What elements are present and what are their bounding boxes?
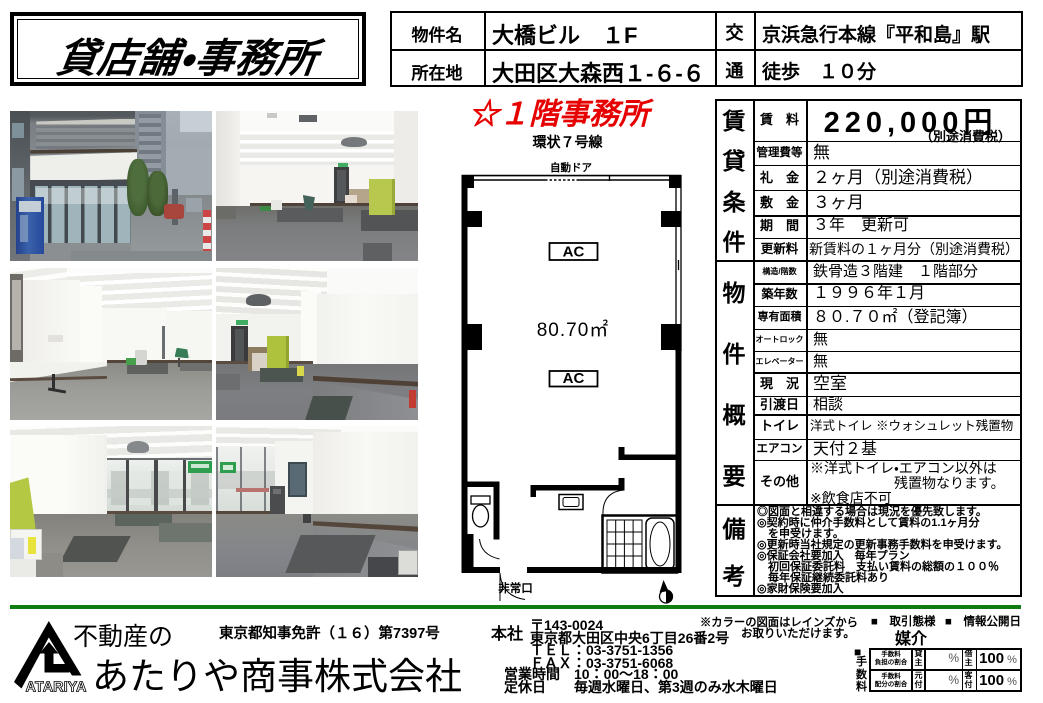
svg-text:非常口: 非常口 — [498, 581, 533, 595]
svg-text:自動ドア: 自動ドア — [550, 161, 592, 174]
svg-text:AC: AC — [563, 244, 585, 261]
svg-text:AC: AC — [563, 370, 585, 387]
svg-text:80.70㎡: 80.70㎡ — [537, 318, 610, 341]
svg-text:ATARIYA: ATARIYA — [26, 680, 87, 696]
